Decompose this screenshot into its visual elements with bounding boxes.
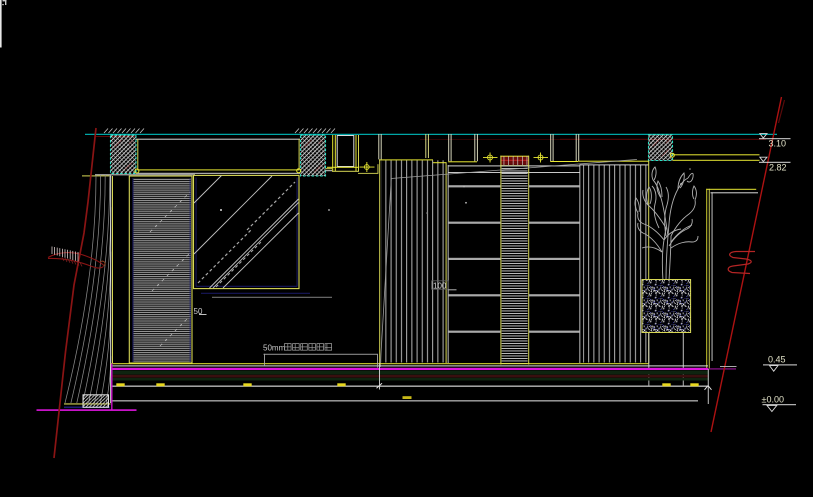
svg-text:±0.00: ±0.00 bbox=[762, 395, 784, 405]
svg-text:50mm: 50mm bbox=[263, 344, 286, 353]
svg-text:0.45: 0.45 bbox=[768, 355, 786, 365]
svg-text:100: 100 bbox=[433, 281, 447, 290]
svg-text:3.10: 3.10 bbox=[769, 139, 787, 149]
svg-text:2.82: 2.82 bbox=[769, 163, 787, 173]
